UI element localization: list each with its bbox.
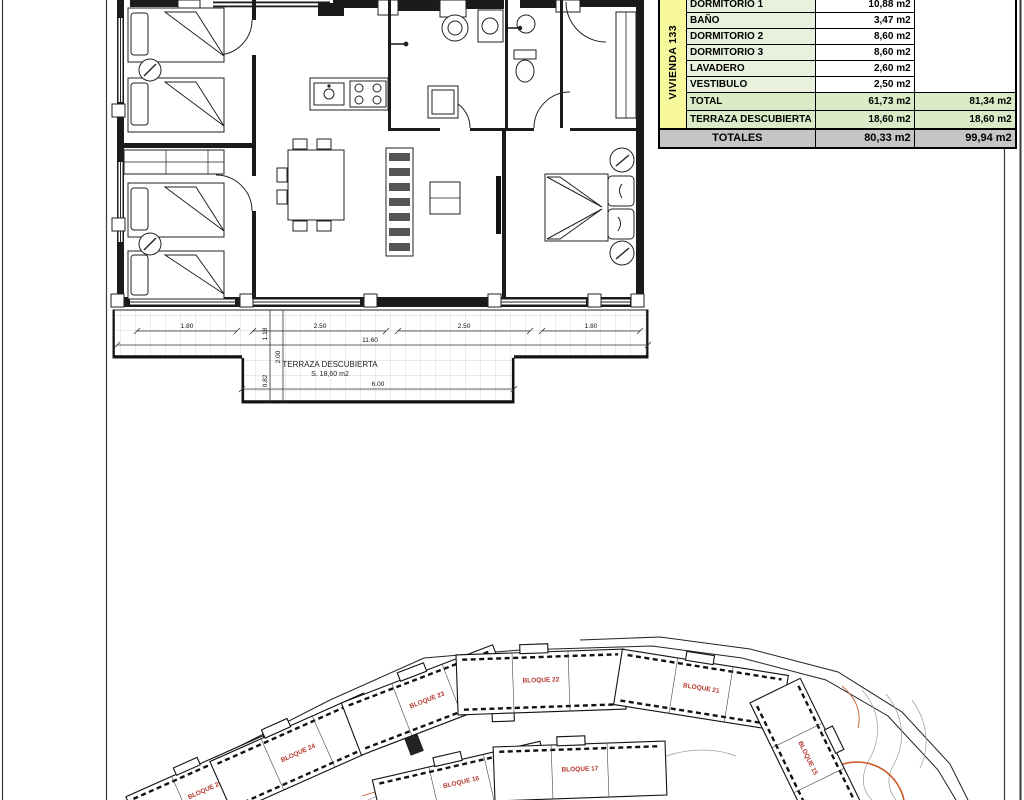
dim-v-lower: 0.82 <box>262 374 269 387</box>
dim-bottom: 6.00 <box>372 381 385 388</box>
master-bedroom <box>545 148 634 265</box>
dim-total-width: 11.60 <box>362 337 378 344</box>
room-label: DORMITORIO 2 <box>687 29 816 45</box>
terrace: 1.80 2.50 2.50 1.80 11.60 1.18 2.00 0.82… <box>113 310 651 403</box>
bedroom-twin-beds-top <box>128 8 224 132</box>
block-22-label: BLOQUE 22 <box>522 676 559 684</box>
empty-cell <box>914 0 1016 93</box>
dim-v-upper: 1.18 <box>262 327 269 340</box>
architectural-sheet: 1.80 2.50 2.50 1.80 11.60 1.18 2.00 0.82… <box>0 0 1024 800</box>
bathroom-main <box>391 10 503 118</box>
totales-util: 80,33 m2 <box>815 129 914 148</box>
total-util: 61,73 m2 <box>815 93 914 111</box>
totales-construida: 99,94 m2 <box>914 129 1016 148</box>
vivienda-vertical-label: VIVIENDA 133 <box>659 0 687 129</box>
bedroom-twin-beds-bottom <box>124 150 224 299</box>
dim-seg3: 2.50 <box>458 323 471 330</box>
room-area: 2,50 m2 <box>815 77 914 93</box>
terrace-area-label: S. 18,60 m2 <box>311 371 349 378</box>
totales-label: TOTALES <box>659 129 815 148</box>
room-area: 8,60 m2 <box>815 29 914 45</box>
terraza-construida: 18,60 m2 <box>914 111 1016 130</box>
building-block-15: BLOQUE 15 <box>750 675 873 800</box>
room-label: DORMITORIO 3 <box>687 45 816 61</box>
room-area: 3,47 m2 <box>815 13 914 29</box>
dim-seg4: 1.80 <box>585 323 598 330</box>
room-label: LAVADERO <box>687 61 816 77</box>
total-label: TOTAL <box>687 93 816 111</box>
building-block-17: BLOQUE 17 <box>493 733 667 800</box>
apartment-floor-plan <box>111 0 644 307</box>
total-construida: 81,34 m2 <box>914 93 1016 111</box>
dim-seg2: 2.50 <box>314 323 327 330</box>
room-area: 8,60 m2 <box>815 45 914 61</box>
dim-seg1: 1.80 <box>181 323 194 330</box>
site-plan: BLOQUE 20 BLOQUE 24 BLOQUE 23 <box>123 637 968 800</box>
terrace-title: TERRAZA DESCUBIERTA <box>282 360 378 369</box>
area-summary-table: VIVIENDA 133 DORMITORIO 1 10,88 m2 BAÑO … <box>658 0 1017 149</box>
terraza-label: TERRAZA DESCUBIERTA <box>687 111 816 130</box>
block-17-label: BLOQUE 17 <box>561 765 598 773</box>
hall-wardrobe <box>616 12 636 118</box>
bathroom-second <box>508 15 536 82</box>
dim-v-mid: 2.00 <box>275 350 282 363</box>
room-label: VESTIBULO <box>687 77 816 93</box>
kitchen <box>310 3 388 110</box>
room-area: 10,88 m2 <box>815 0 914 13</box>
room-label: BAÑO <box>687 13 816 29</box>
room-label: DORMITORIO 1 <box>687 0 816 13</box>
room-area: 2,60 m2 <box>815 61 914 77</box>
sofa <box>386 148 413 256</box>
tv-unit <box>430 176 501 234</box>
dining-table <box>277 139 344 231</box>
terraza-util: 18,60 m2 <box>815 111 914 130</box>
